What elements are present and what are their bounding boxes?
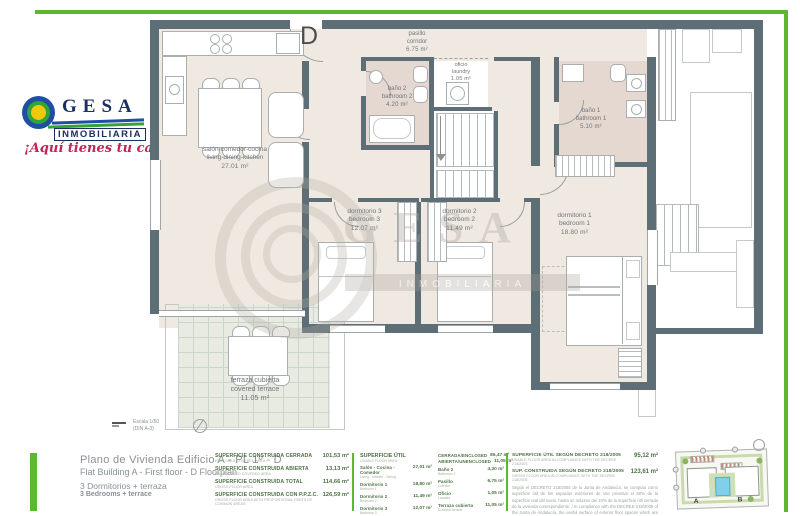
washer-drum bbox=[450, 86, 465, 101]
neighbour-room bbox=[690, 92, 752, 228]
window bbox=[438, 325, 493, 333]
wall bbox=[430, 111, 434, 202]
table-row: SUPERFICIE ÚTIL SEGÚN DECRETO 218/2005US… bbox=[512, 453, 658, 466]
useful-areas-table: SUPERFICIE ÚTIL USABLE FLOOR AREA Salón … bbox=[360, 453, 432, 516]
right-accent-line bbox=[784, 10, 788, 512]
north-compass-icon bbox=[193, 419, 207, 433]
sofa bbox=[268, 92, 304, 138]
table-separator bbox=[352, 453, 354, 511]
gesa-logo: GESA INMOBILIARIA ¡Aquí tienes tu casa..… bbox=[22, 92, 152, 156]
wall bbox=[655, 328, 763, 334]
table-row: SUPERFICIE CONSTRUIDA CERRADAENCLOSED CO… bbox=[215, 453, 349, 463]
wall bbox=[754, 230, 763, 334]
wall bbox=[531, 57, 540, 166]
neighbour-closet bbox=[658, 29, 676, 121]
room-label-terrace: terraza cubierta covered terrace 11.05 m… bbox=[190, 376, 320, 403]
pillow bbox=[626, 260, 640, 278]
pool bbox=[715, 477, 731, 497]
stove-burner bbox=[222, 34, 232, 44]
stove-burner bbox=[222, 44, 232, 54]
wall bbox=[361, 145, 434, 150]
table-row: Dormitorio 2Bedroom 2 11,49 m² bbox=[360, 494, 432, 503]
table-row: Baño 2Bathroom 2 4,20 m² bbox=[438, 467, 504, 476]
wall bbox=[322, 20, 763, 29]
toilet bbox=[610, 64, 626, 82]
pergola bbox=[690, 455, 714, 463]
chair bbox=[242, 78, 260, 89]
wall bbox=[494, 57, 534, 61]
blanket-line bbox=[568, 294, 620, 296]
room-label-bathroom1: baño 1 bathroom 1 5.10 m² bbox=[558, 108, 624, 131]
bathtub-basin bbox=[373, 118, 411, 139]
wall bbox=[647, 57, 656, 390]
table-row: SUPERFICIE CONSTRUIDA TOTALGROSS FLOOR A… bbox=[215, 479, 349, 489]
tree-icon bbox=[700, 448, 706, 454]
building-a-label: A bbox=[694, 498, 699, 505]
wall bbox=[361, 61, 366, 71]
table-row: PasilloCorridor 6,75 m² bbox=[438, 479, 504, 488]
scale-bar bbox=[112, 422, 126, 424]
window bbox=[550, 383, 620, 390]
built-areas-table: SUPERFICIE CONSTRUIDA CERRADAENCLOSED CO… bbox=[215, 453, 349, 509]
useful-areas-table-2: CERRADA/ENCLOSED 86,47 m² ABIERTA/UNENCL… bbox=[438, 453, 504, 515]
table-total-row: ABIERTA/UNENCLOSED 11,05 m² bbox=[438, 459, 504, 464]
fridge bbox=[276, 33, 300, 54]
footer-accent-bar bbox=[30, 453, 37, 511]
table-total-row: CERRADA/ENCLOSED 86,47 m² bbox=[438, 453, 504, 458]
room-label-bedroom3: dormitorio 3 bedroom 3 12.07 m² bbox=[317, 208, 412, 233]
pillow bbox=[326, 246, 366, 259]
room-label-bedroom2: dormitorio 2 bedroom 2 11.49 m² bbox=[412, 208, 507, 233]
chair bbox=[222, 78, 240, 89]
wall bbox=[361, 57, 434, 61]
sliding-door bbox=[434, 58, 488, 59]
blanket-line bbox=[318, 276, 372, 277]
pillow bbox=[445, 246, 485, 259]
decree-areas-table: SUPERFICIE ÚTIL SEGÚN DECRETO 218/2005US… bbox=[512, 453, 658, 516]
tree-icon bbox=[673, 467, 679, 473]
neighbour-furniture bbox=[670, 252, 742, 272]
shower bbox=[562, 64, 584, 82]
closet bbox=[618, 348, 642, 378]
logo-subtitle: INMOBILIARIA bbox=[54, 128, 146, 141]
window bbox=[159, 310, 305, 317]
stove-burner bbox=[210, 34, 220, 44]
keyplan-compass-icon bbox=[753, 439, 765, 451]
wall bbox=[150, 20, 290, 29]
sink-basin bbox=[631, 104, 642, 115]
chair bbox=[202, 78, 220, 89]
headboard-line bbox=[622, 256, 623, 344]
wall bbox=[754, 20, 763, 230]
floor-plan: GESA INMOBILIARIA D salón-comedor-cocina… bbox=[150, 14, 772, 448]
wall bbox=[309, 198, 332, 202]
table-row: OficioLaundry 1,05 m² bbox=[438, 491, 504, 500]
table-separator bbox=[506, 453, 508, 511]
building-b-label: B bbox=[738, 496, 743, 503]
table-row: Salón - Cocina - ComedorLiving - Kitchen… bbox=[360, 465, 432, 479]
decree-note: Según el DECRETO 218/2005 de la Junta de… bbox=[512, 485, 658, 516]
room-label-bathroom2: baño 2 bathroom 2 4.20 m² bbox=[366, 86, 428, 109]
wall bbox=[531, 324, 540, 390]
wardrobe bbox=[555, 155, 615, 177]
chair bbox=[252, 326, 270, 337]
room-label-corridor: pasillo corridor 6.75 m² bbox=[382, 31, 452, 54]
wall bbox=[554, 57, 559, 102]
table-row: Terraza cubiertaCovered terrace 11,05 m² bbox=[438, 503, 504, 512]
tree-icon bbox=[673, 484, 679, 490]
sink-basin bbox=[631, 78, 642, 89]
room-label-laundry: oficio laundry 1.05 m² bbox=[434, 62, 488, 83]
tree-icon bbox=[732, 446, 738, 452]
room-label-bedroom1: dormitorio 1 bedroom 1 18.80 m² bbox=[527, 212, 622, 237]
site-key-plan: A B bbox=[674, 444, 772, 514]
wall bbox=[524, 198, 531, 202]
blanket-line bbox=[568, 286, 620, 288]
table-row: SUP. CONSTRUIDA SEGÚN DECRETO 218/2005GR… bbox=[512, 469, 658, 482]
room-label-living: salón-comedor-cocina living-dining-kitch… bbox=[175, 146, 295, 171]
table-row: Dormitorio 3Bedroom 3 12,07 m² bbox=[360, 506, 432, 515]
wall bbox=[434, 107, 492, 111]
table-row: SUPERFICIE CONSTRUIDA ABIERTAUNENCLOSED … bbox=[215, 466, 349, 476]
washbasin bbox=[369, 70, 383, 84]
table-row: SUPERFICIE CONSTRUIDA CON P.P.Z.C.GROSS … bbox=[215, 492, 349, 506]
page: GESA INMOBILIARIA ¡Aquí tienes tu casa..… bbox=[0, 0, 800, 516]
dining-table bbox=[198, 88, 262, 148]
window bbox=[150, 160, 161, 230]
window bbox=[647, 230, 658, 285]
stairs-direction-line bbox=[440, 116, 441, 154]
neighbour-fixture bbox=[682, 29, 710, 63]
blanket-line bbox=[437, 276, 491, 277]
table-row: Dormitorio 1Bedroom 1 18,80 m² bbox=[360, 482, 432, 491]
chair bbox=[232, 326, 250, 337]
terrace-table bbox=[228, 336, 288, 376]
scale-note: Escala 1/50 (DIN A-3) bbox=[133, 419, 159, 433]
scale-bar bbox=[112, 425, 119, 427]
stairs bbox=[436, 170, 494, 198]
window bbox=[330, 325, 385, 333]
pillow bbox=[626, 322, 640, 340]
stairs-arrow-icon bbox=[436, 154, 446, 161]
wall bbox=[494, 111, 498, 202]
neighbour-furniture bbox=[736, 240, 754, 308]
stove-burner bbox=[210, 44, 220, 54]
chair bbox=[272, 326, 290, 337]
logo-name: GESA bbox=[62, 96, 138, 118]
toilet bbox=[413, 66, 428, 83]
neighbour-fixture bbox=[712, 29, 742, 53]
sink-basin bbox=[169, 84, 180, 95]
entrance-label: D bbox=[300, 22, 318, 51]
parcel: A B bbox=[675, 448, 769, 509]
